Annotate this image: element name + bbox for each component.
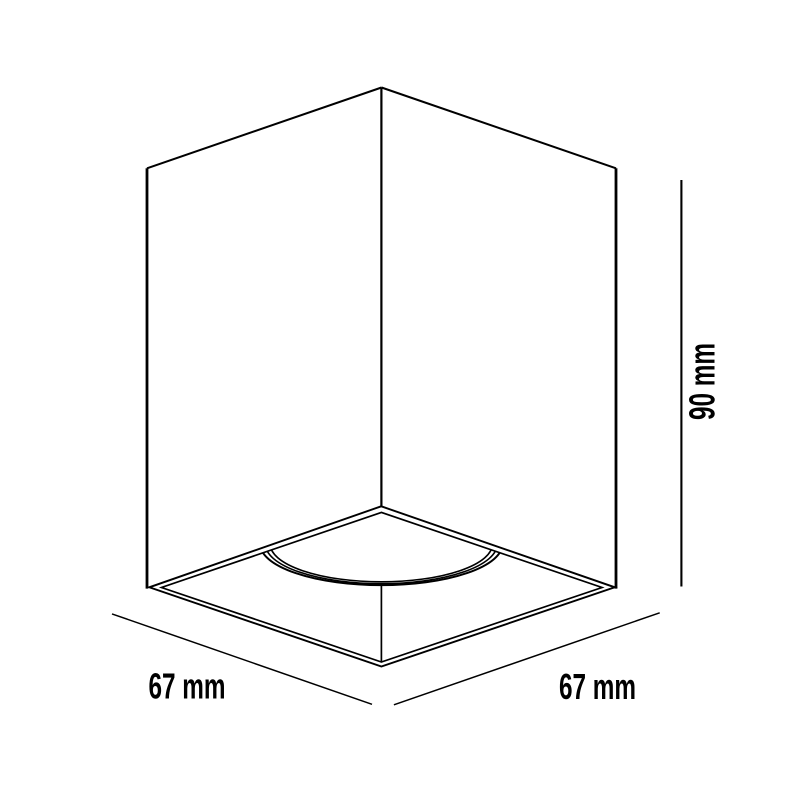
svg-text:67 mm: 67 mm — [149, 666, 226, 707]
svg-text:67 mm: 67 mm — [559, 666, 636, 707]
svg-text:90 mm: 90 mm — [682, 343, 723, 420]
